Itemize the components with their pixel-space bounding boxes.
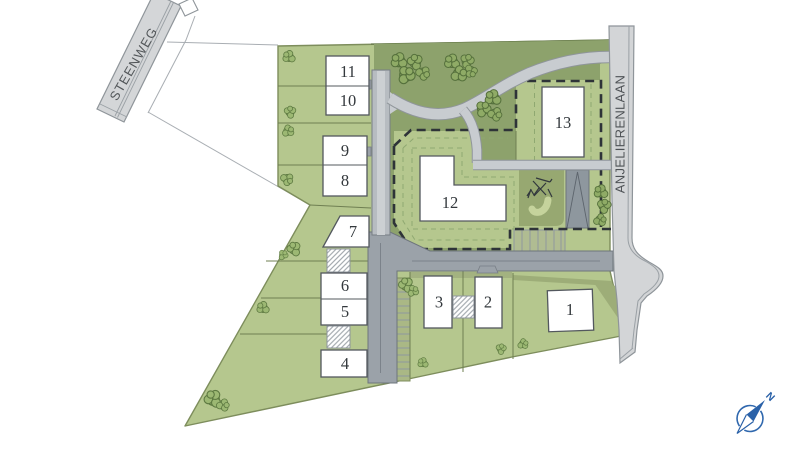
svg-text:8: 8 [341, 171, 349, 190]
svg-text:5: 5 [341, 302, 349, 321]
svg-text:11: 11 [340, 62, 356, 81]
svg-text:6: 6 [341, 276, 349, 295]
svg-text:ANJELIERENLAAN: ANJELIERENLAAN [613, 75, 628, 193]
svg-text:2: 2 [484, 293, 492, 312]
svg-text:N: N [763, 390, 777, 404]
svg-text:12: 12 [442, 193, 459, 212]
svg-text:7: 7 [349, 222, 357, 241]
svg-text:3: 3 [435, 293, 443, 312]
svg-text:10: 10 [340, 91, 357, 110]
svg-text:13: 13 [555, 113, 572, 132]
svg-text:9: 9 [341, 141, 349, 160]
svg-text:1: 1 [566, 300, 574, 319]
svg-text:4: 4 [341, 354, 349, 373]
